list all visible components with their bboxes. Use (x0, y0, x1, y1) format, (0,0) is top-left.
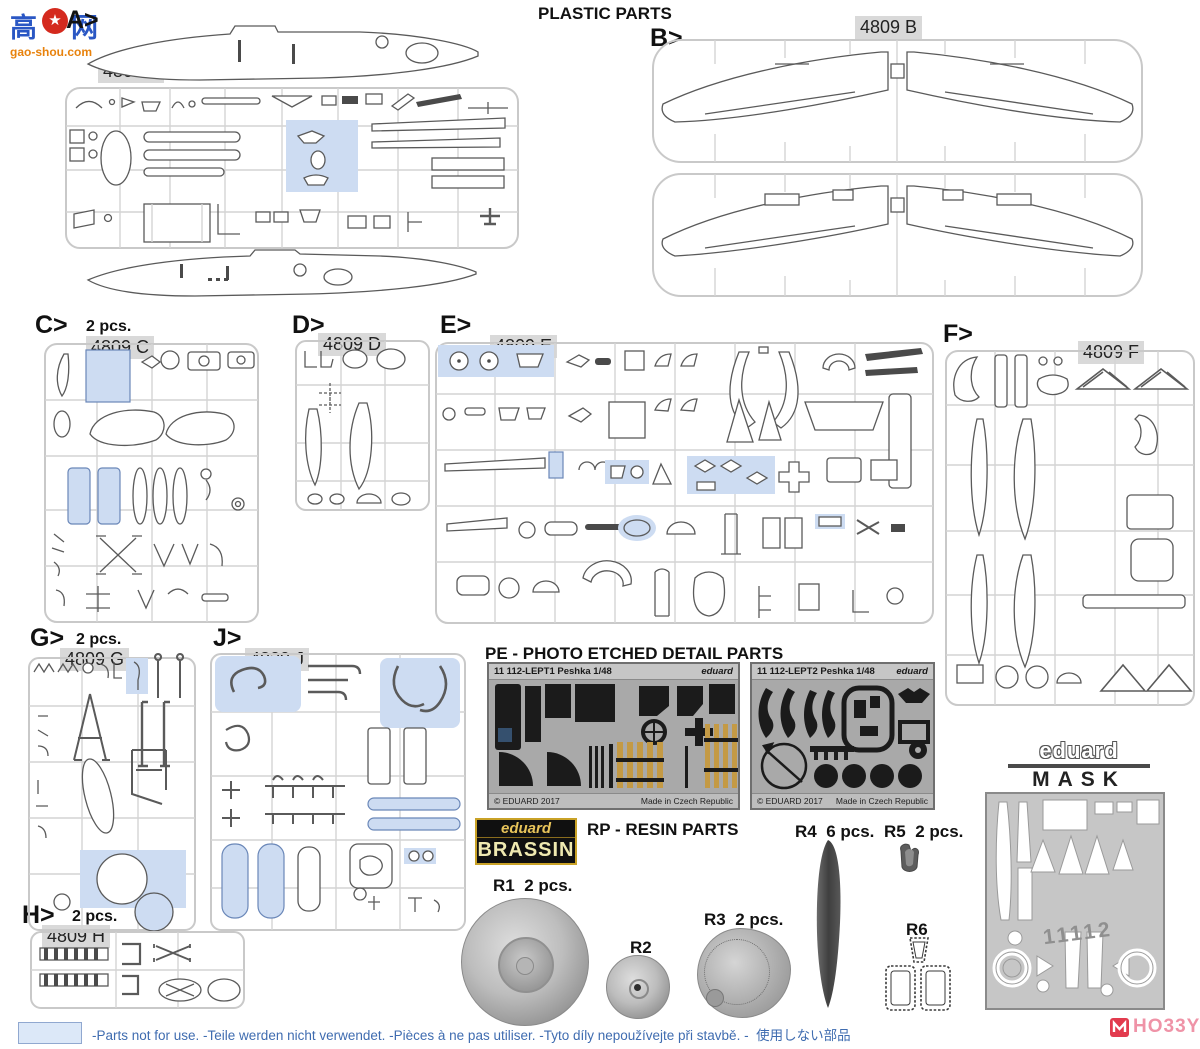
sprue-e-tag: E> (440, 311, 471, 340)
legend-swatch (18, 1022, 82, 1044)
resin-r2-wheel (606, 955, 670, 1019)
sprue-e-drawing (433, 338, 938, 628)
instruction-sheet: 高★网 gao-shou.com PLASTIC PARTS A> B> 480… (0, 0, 1200, 1049)
mask-label: MASK (1008, 768, 1150, 792)
sprue-b-drawing (645, 34, 1150, 304)
resin-r6-part (880, 934, 956, 1014)
resin-r4-blade (806, 838, 850, 1012)
sprue-j-drawing (208, 648, 468, 933)
pe-fret-2-brand: eduard (896, 666, 928, 677)
resin-r1-wheel (461, 898, 589, 1026)
sprue-h-drawing (28, 928, 248, 1012)
sprue-a-drawing (60, 18, 525, 308)
pe-fret-2-header: 11 112-LEPT2 Peshka 1/48 (757, 666, 875, 677)
pe-fret-1-brand: eduard (701, 666, 733, 677)
sprue-c-tag: C> (35, 311, 68, 340)
sprue-c-qty: 2 pcs. (86, 318, 131, 336)
pe-fret-1-origin: Made in Czech Republic (641, 796, 733, 806)
legend-text: -Parts not for use. -Teile werden nicht … (92, 1024, 851, 1044)
page-title: PLASTIC PARTS (538, 4, 672, 24)
mask-logo: eduard MASK (1008, 738, 1150, 792)
watermark-char-left: 高 (10, 13, 37, 43)
pe-fret-2-origin: Made in Czech Republic (836, 796, 928, 806)
hobby-search-icon (1110, 1018, 1129, 1037)
resin-r3-cowling (697, 928, 791, 1018)
brassin-brand: eduard (477, 820, 575, 838)
sprue-d-drawing (293, 335, 433, 515)
sprue-g-drawing (26, 650, 198, 935)
pe-title: PE - PHOTO ETCHED DETAIL PARTS (485, 644, 783, 664)
resin-r5-label: R5 2 pcs. (884, 822, 963, 842)
pe-fret-2-copyright: © EDUARD 2017 (757, 796, 823, 806)
pe-fret-2: 11 112-LEPT2 Peshka 1/48eduard © EDUARD … (750, 662, 935, 810)
hobby-search-logo: HO33Y SEARCH (1110, 1016, 1200, 1038)
mask-sheet (985, 792, 1165, 1010)
resin-r3-label: R3 2 pcs. (704, 910, 783, 930)
sprue-c-drawing (42, 338, 262, 628)
mask-brand: eduard (1039, 738, 1118, 763)
pe-fret-1: 11 112-LEPT1 Peshka 1/48eduard (487, 662, 740, 810)
pe-fret-1-header: 11 112-LEPT1 Peshka 1/48 (494, 666, 612, 677)
hobby-search-text1: HO33Y (1133, 1016, 1200, 1038)
resin-r1-label: R1 2 pcs. (493, 876, 572, 896)
rp-title: RP - RESIN PARTS (587, 820, 738, 840)
brassin-line: BRASSIN (477, 838, 575, 862)
brassin-logo: eduard BRASSIN (475, 818, 577, 865)
pe-fret-1-copyright: © EDUARD 2017 (494, 796, 560, 806)
sprue-g-qty: 2 pcs. (76, 631, 121, 649)
sprue-f-drawing (943, 343, 1198, 713)
sprue-g-tag: G> (30, 624, 64, 653)
resin-r5-part (896, 842, 922, 874)
pe-fret-2-parts (752, 680, 933, 793)
pe-fret-1-parts (489, 680, 738, 793)
